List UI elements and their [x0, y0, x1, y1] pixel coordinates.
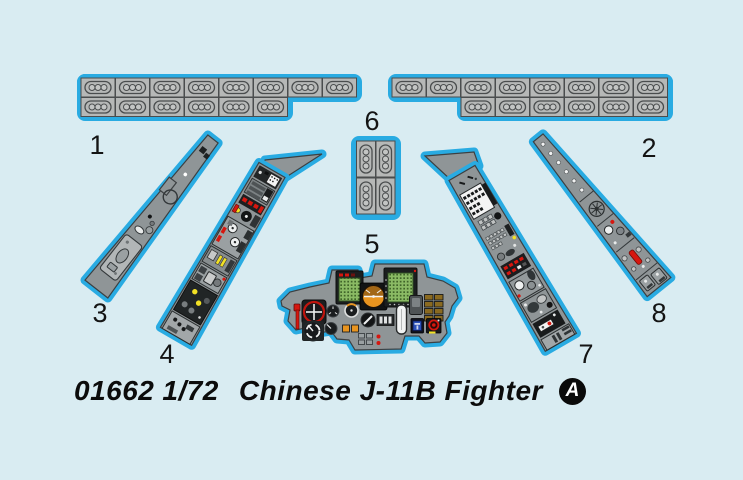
kit-name: Chinese J-11B Fighter: [239, 375, 543, 407]
part-1-label: 1: [89, 130, 104, 160]
part-4-label: 4: [159, 339, 174, 369]
part-8-label: 8: [651, 298, 666, 328]
part-5-label: 5: [364, 229, 379, 259]
sprue-letter-badge: A: [559, 378, 586, 405]
part-1-placard-strip: [77, 74, 362, 121]
kit-number: 01662: [74, 375, 154, 407]
parts-diagram: 1 2 3 4 5 6 7 8: [0, 0, 743, 480]
part-2-label: 2: [641, 133, 656, 163]
part-5-main-instrument-panel: [281, 264, 458, 350]
part-3-label: 3: [92, 298, 107, 328]
part-7-label: 7: [578, 339, 593, 369]
sheet-title: 01662 1/72 Chinese J-11B Fighter A: [74, 374, 586, 408]
kit-scale: 1/72: [162, 375, 219, 407]
part-6-label: 6: [364, 106, 379, 136]
part-6-placard-block: [351, 136, 401, 220]
part-2-placard-strip: [388, 74, 673, 121]
instruction-sheet-page: 1 2 3 4 5 6 7 8 01662 1/72 Chinese J-11B…: [0, 0, 743, 480]
